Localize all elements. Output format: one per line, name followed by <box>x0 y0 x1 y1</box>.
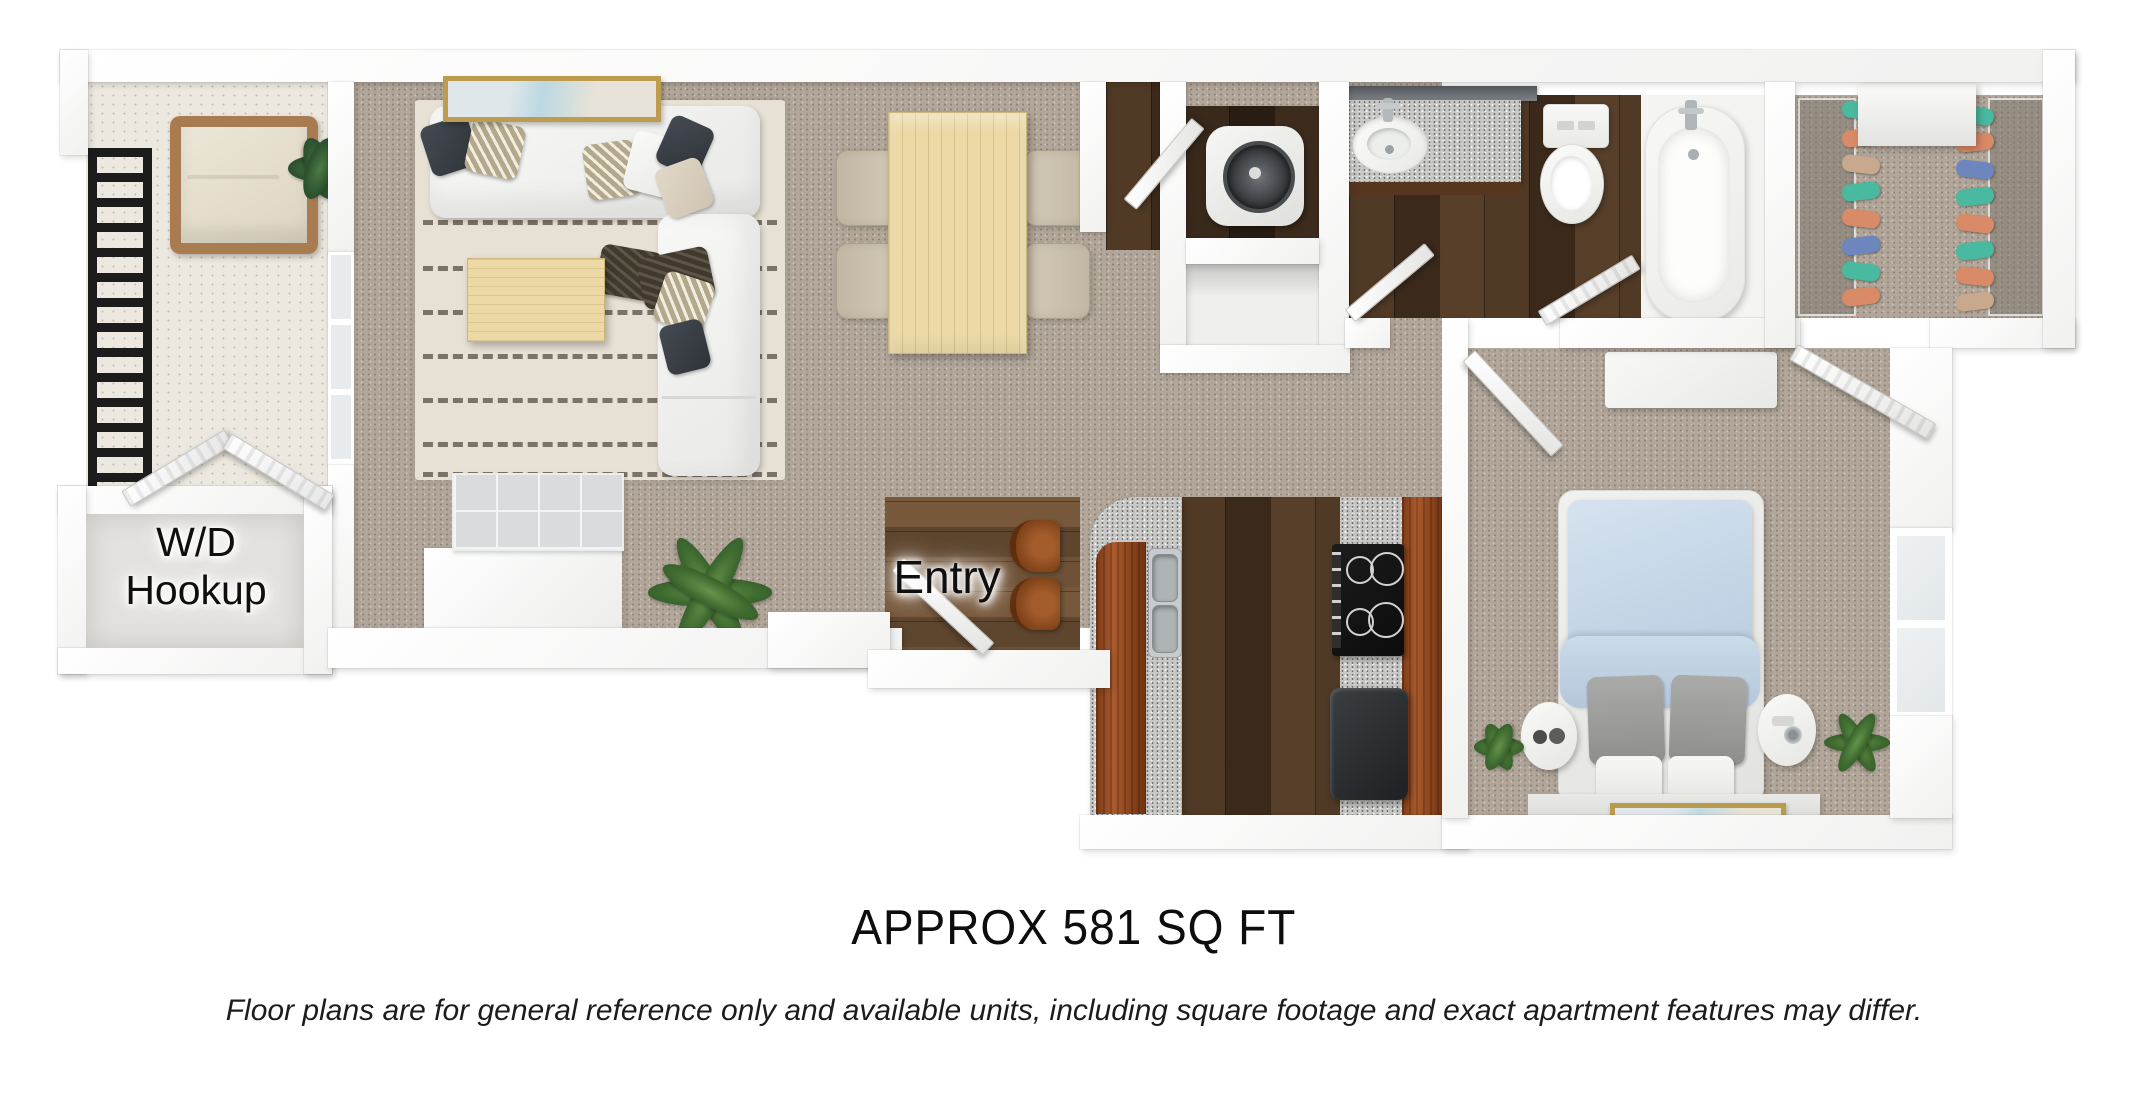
dining-chair <box>1024 243 1090 319</box>
mid-wall-seg-b <box>1560 318 1800 348</box>
sofa-seam <box>662 396 756 399</box>
coffee-table <box>467 258 605 342</box>
flush-button <box>1557 121 1574 130</box>
tub-drain <box>1688 149 1699 160</box>
wd-room-wall-left <box>58 486 86 674</box>
wall-hall-bedroom <box>1442 318 1468 818</box>
nightstand-round <box>1758 694 1816 766</box>
sink-basin <box>1152 554 1178 602</box>
bed-pillow-gray <box>1668 675 1747 766</box>
toilet-bowl <box>1540 144 1604 224</box>
closet-top-shelf-box <box>1858 84 1976 146</box>
wall-kitchen-bottom <box>1080 815 1468 849</box>
toilet-seat <box>1550 156 1592 210</box>
nightstand-decor <box>1772 716 1794 726</box>
floor-plan-page: W/D Hookup Entry APPROX 581 SQ FT Floor … <box>0 0 2148 1116</box>
sink-bowl <box>1367 128 1411 160</box>
dining-table <box>888 112 1027 354</box>
washer-unit <box>1206 126 1304 226</box>
window-pane <box>1897 628 1945 712</box>
tile-backsplash <box>452 473 624 551</box>
washer-drum-center <box>1249 167 1261 179</box>
wall-entry-bottom <box>868 650 1110 688</box>
utility-wall-right <box>1319 82 1349 348</box>
stove-control-panel <box>1332 552 1341 648</box>
wd-hookup-label: W/D Hookup <box>110 518 282 615</box>
wall-top <box>60 50 2075 82</box>
kitchen-wood-floor <box>1180 497 1340 815</box>
bathroom-sink <box>1352 116 1428 174</box>
nightstand-decor <box>1549 728 1565 744</box>
bedroom-right-wall-lower <box>1890 716 1952 818</box>
wall-balcony-living-upper <box>328 82 354 254</box>
linen-shelf-interior <box>1186 264 1319 346</box>
wall-left-upper <box>60 50 88 155</box>
bedroom-plant-right <box>1824 706 1890 778</box>
chair-cushion-seam <box>187 175 279 179</box>
wall-hall-stub <box>1080 82 1106 232</box>
bedroom-plant-left <box>1474 710 1524 784</box>
stove-burner <box>1368 602 1404 638</box>
sink-faucet-bar <box>1375 103 1401 109</box>
bedroom-right-wall-upper <box>1890 348 1952 530</box>
refrigerator <box>1330 688 1408 800</box>
wall-bedroom-bottom <box>1442 815 1952 849</box>
sqft-title: APPROX 581 SQ FT <box>0 900 2148 956</box>
bathtub <box>1645 106 1745 322</box>
sofa-pillow-patterned <box>463 117 527 181</box>
sqft-title-text: APPROX 581 SQ FT <box>851 900 1296 956</box>
tub-faucet-bar <box>1678 108 1704 114</box>
entry-label: Entry <box>862 550 1032 604</box>
utility-wall-bottom <box>1160 345 1350 373</box>
wd-room-wall-bottom <box>58 648 332 674</box>
nightstand-flowers <box>1784 726 1802 744</box>
tile-counter-block <box>424 548 622 630</box>
bed-pillow-gray <box>1586 675 1665 766</box>
mid-wall-seg-a <box>1345 318 1390 348</box>
vanity-wood-edge <box>1347 182 1521 195</box>
stove-cooktop <box>1332 544 1404 656</box>
nightstand-decor <box>1533 730 1547 744</box>
sink-basin <box>1152 605 1178 653</box>
sink-drain <box>1385 145 1394 154</box>
living-art-frame <box>443 76 661 122</box>
disclaimer-text: Floor plans are for general reference on… <box>0 994 2148 1028</box>
bedroom-dresser <box>1605 352 1777 408</box>
utility-wall-left <box>1160 82 1186 348</box>
wall-right-upper <box>2043 50 2075 348</box>
balcony-railing <box>88 148 152 494</box>
sink-faucet <box>1383 98 1393 122</box>
bathroom-mirror <box>1347 86 1537 101</box>
window-pane <box>1897 536 1945 620</box>
tub-faucet <box>1685 100 1697 130</box>
stove-burner <box>1370 552 1404 586</box>
kitchen-sink <box>1148 548 1182 658</box>
wall-bath-closet-divider <box>1765 82 1795 348</box>
bedroom-window <box>1890 528 1952 720</box>
living-window-left <box>328 252 354 467</box>
flush-button <box>1578 121 1595 130</box>
toilet-tank <box>1543 104 1609 148</box>
utility-wall-divider <box>1186 238 1319 264</box>
closet-wire-shelf-right <box>1988 98 2044 316</box>
nightstand-round <box>1521 702 1577 770</box>
kitchen-right-cabinets <box>1402 497 1444 815</box>
